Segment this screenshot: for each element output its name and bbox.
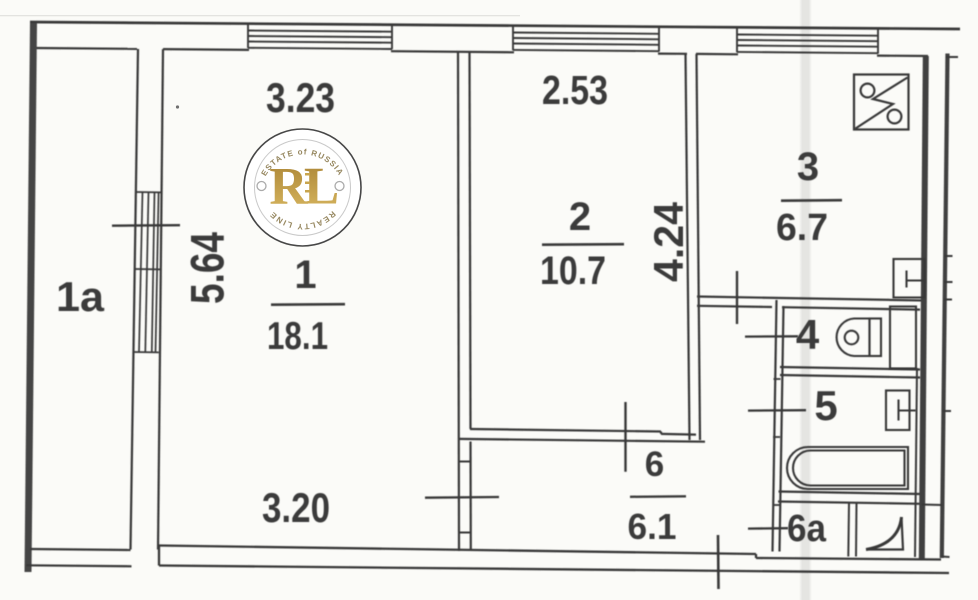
svg-text:6.7: 6.7 bbox=[776, 207, 828, 249]
svg-text:4: 4 bbox=[796, 311, 820, 358]
svg-text:3.20: 3.20 bbox=[262, 484, 330, 531]
svg-text:6a: 6a bbox=[787, 508, 827, 550]
svg-text:3.23: 3.23 bbox=[266, 74, 335, 121]
svg-text:4.24: 4.24 bbox=[645, 201, 692, 282]
svg-text:10.7: 10.7 bbox=[540, 249, 606, 293]
svg-text:2.53: 2.53 bbox=[542, 67, 608, 113]
svg-text:2: 2 bbox=[569, 195, 591, 239]
svg-text:6.1: 6.1 bbox=[628, 506, 677, 547]
svg-text:5.64: 5.64 bbox=[181, 232, 234, 304]
svg-text:1a: 1a bbox=[56, 273, 105, 320]
svg-text:3: 3 bbox=[797, 145, 819, 189]
svg-text:18.1: 18.1 bbox=[267, 315, 328, 358]
svg-text:5: 5 bbox=[814, 382, 837, 429]
svg-text:6: 6 bbox=[645, 445, 664, 484]
svg-text:1: 1 bbox=[294, 253, 316, 297]
